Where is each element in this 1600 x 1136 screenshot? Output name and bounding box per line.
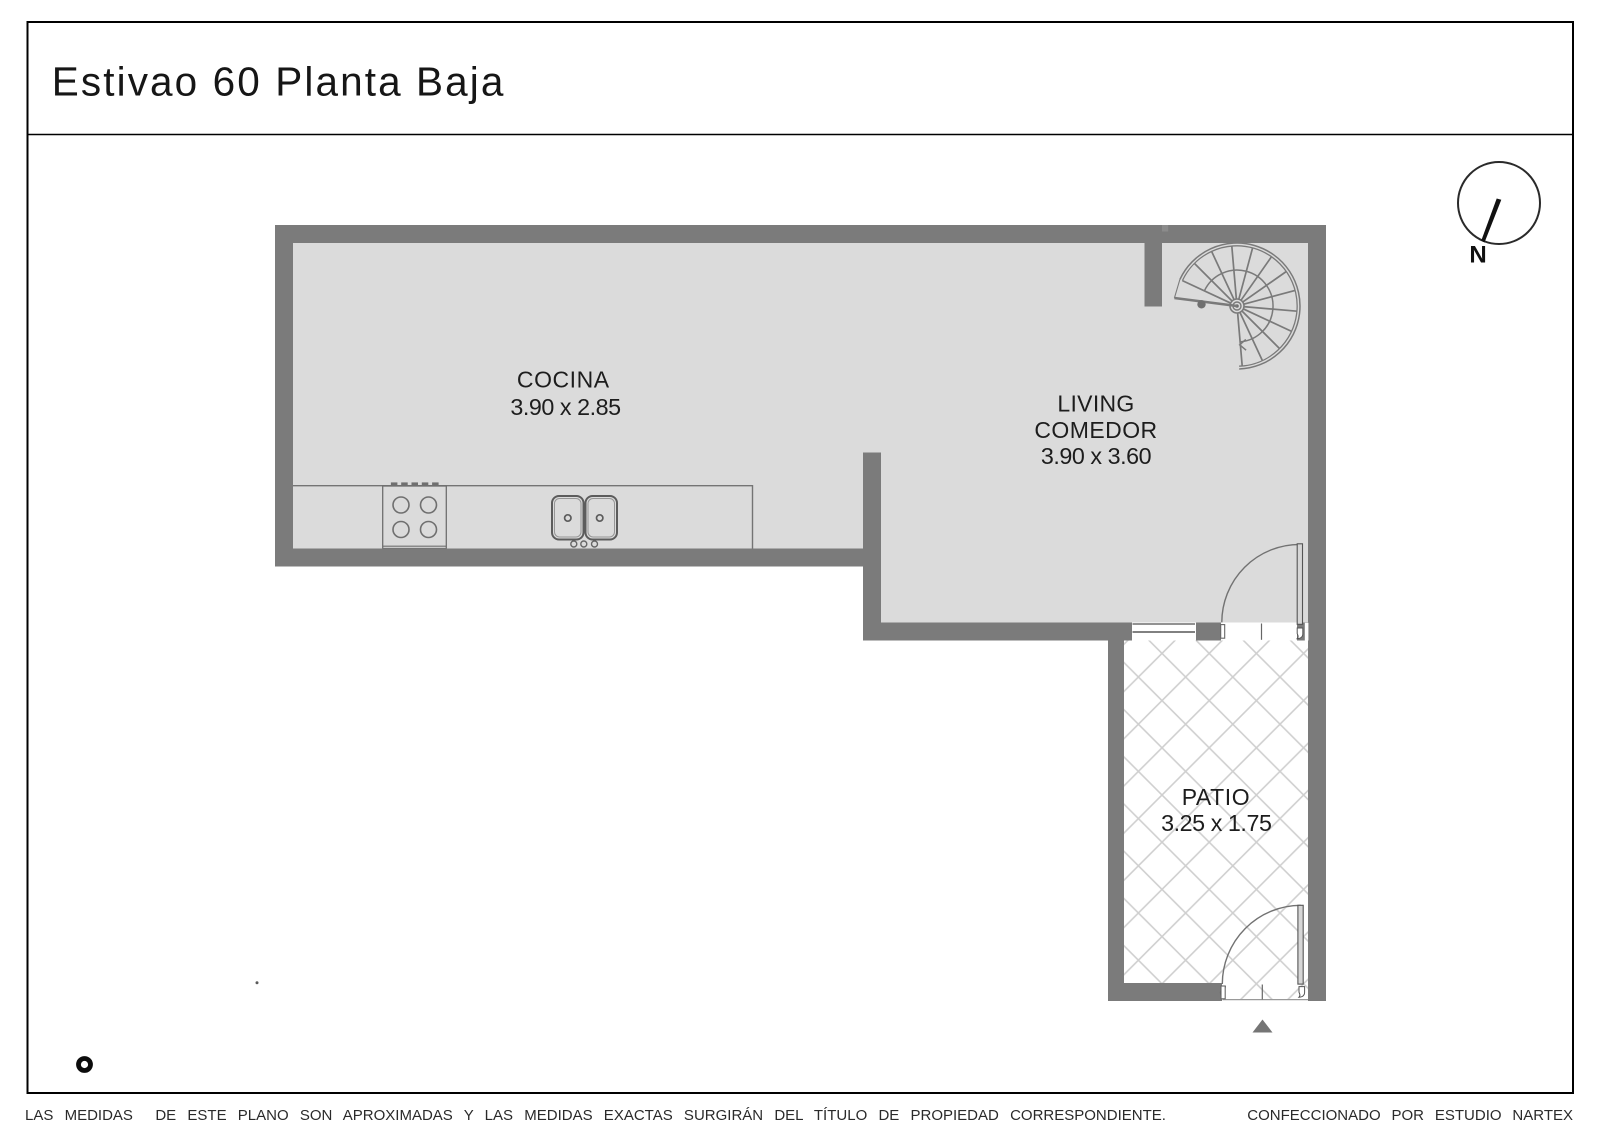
svg-text:PATIO: PATIO — [1182, 784, 1251, 810]
svg-text:COMEDOR: COMEDOR — [1034, 417, 1157, 443]
svg-text:3.90 x 3.60: 3.90 x 3.60 — [1041, 443, 1152, 469]
svg-text:CONFECCIONADO POR ESTUDIO NART: CONFECCIONADO POR ESTUDIO NARTEX — [1247, 1107, 1573, 1124]
svg-text:LAS MEDIDAS DE ESTE PLANO SON: LAS MEDIDAS DE ESTE PLANO SON APROXIMADA… — [25, 1107, 1166, 1124]
svg-text:COCINA: COCINA — [517, 367, 610, 393]
svg-text:LIVING: LIVING — [1057, 391, 1134, 417]
svg-text:3.90 x 2.85: 3.90 x 2.85 — [510, 394, 620, 420]
svg-text:N: N — [1469, 242, 1486, 269]
svg-text:3.25 x 1.75: 3.25 x 1.75 — [1161, 810, 1271, 836]
svg-text:Estivao 60 Planta Baja: Estivao 60 Planta Baja — [52, 59, 506, 105]
